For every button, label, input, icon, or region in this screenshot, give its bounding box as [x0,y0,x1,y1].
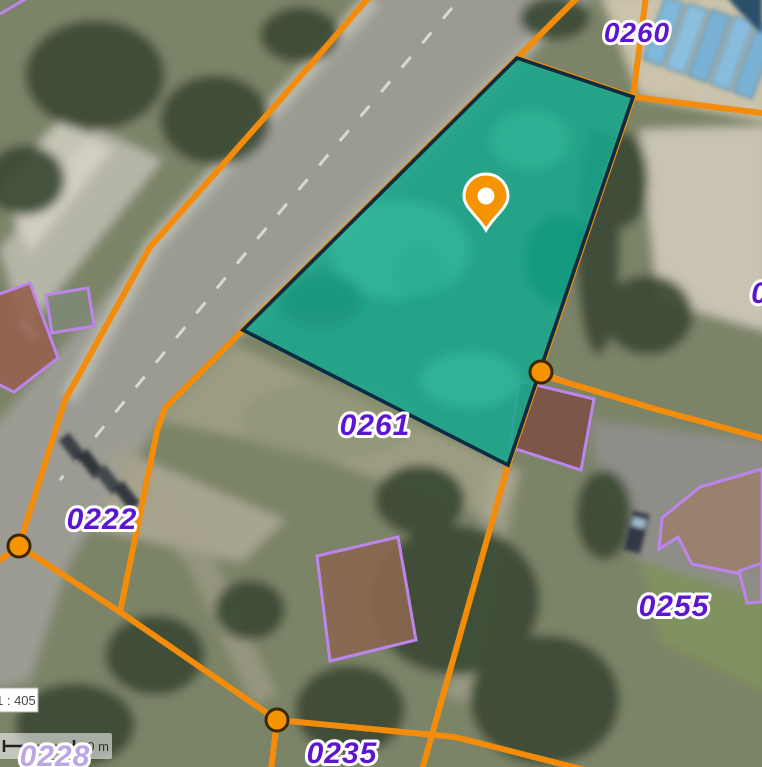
parcel-label-0255: 0255 [639,590,710,623]
tree-canopy [215,580,285,640]
parcel-label-partial: 0 [751,277,762,310]
location-pin-dot [478,188,495,205]
vertex-node[interactable] [266,709,288,731]
texture-blob [420,352,520,408]
parcel-label-0228: 0228 [20,740,91,767]
tree-canopy [25,20,165,130]
parcel-label-0235: 0235 [307,737,378,767]
parcel-label-0222: 0222 [67,503,138,536]
tree-canopy [105,615,205,695]
tree-canopy [375,465,465,535]
building-outline [317,537,416,661]
vertex-node[interactable] [8,535,30,557]
tree-canopy [160,75,270,165]
building-outline [46,288,94,333]
tree-canopy [576,470,632,560]
scale-ratio-widget: 1 : 405 [0,688,38,712]
parcel-label-0260: 0260 [604,17,670,48]
map-canvas[interactable]: 1 : 405 10 m 0260 0261 0222 0255 0235 0 … [0,0,762,767]
tree-canopy [603,275,693,355]
map-viewport[interactable]: 1 : 405 10 m 0260 0261 0222 0255 0235 0 … [0,0,762,767]
parcel-label-0261: 0261 [340,409,411,442]
vertex-node[interactable] [530,361,552,383]
tree-canopy [260,7,340,63]
scale-ratio-text: 1 : 405 [0,693,36,708]
texture-blob [490,110,570,170]
